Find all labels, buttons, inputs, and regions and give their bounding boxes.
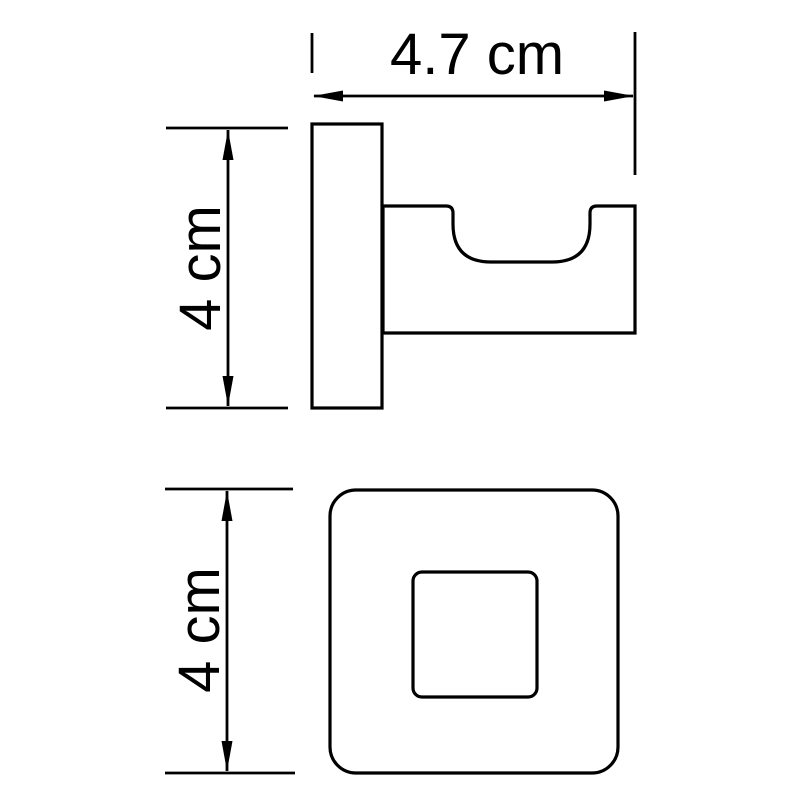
arrowhead-up-icon	[222, 491, 233, 521]
side-profile-view: 4.7 cm 4 cm	[166, 22, 635, 408]
hook-body-outline	[383, 206, 635, 333]
arrowhead-left-icon	[313, 91, 343, 102]
width-dimension-label: 4.7 cm	[390, 22, 564, 87]
side-height-dimension-label: 4 cm	[168, 205, 233, 331]
side-height-dimension: 4 cm	[166, 128, 288, 408]
front-inner-square-outline	[413, 572, 537, 697]
front-height-dimension: 4 cm	[165, 489, 295, 773]
arrowhead-down-icon	[222, 741, 233, 771]
front-view: 4 cm	[165, 489, 618, 773]
technical-drawing: 4.7 cm 4 cm	[0, 0, 800, 800]
arrowhead-right-icon	[604, 91, 634, 102]
arrowhead-down-icon	[223, 376, 234, 406]
arrowhead-up-icon	[223, 130, 234, 160]
wall-plate-outline	[312, 124, 382, 408]
front-height-dimension-label: 4 cm	[167, 567, 232, 693]
drawing-canvas: 4.7 cm 4 cm	[0, 0, 800, 800]
